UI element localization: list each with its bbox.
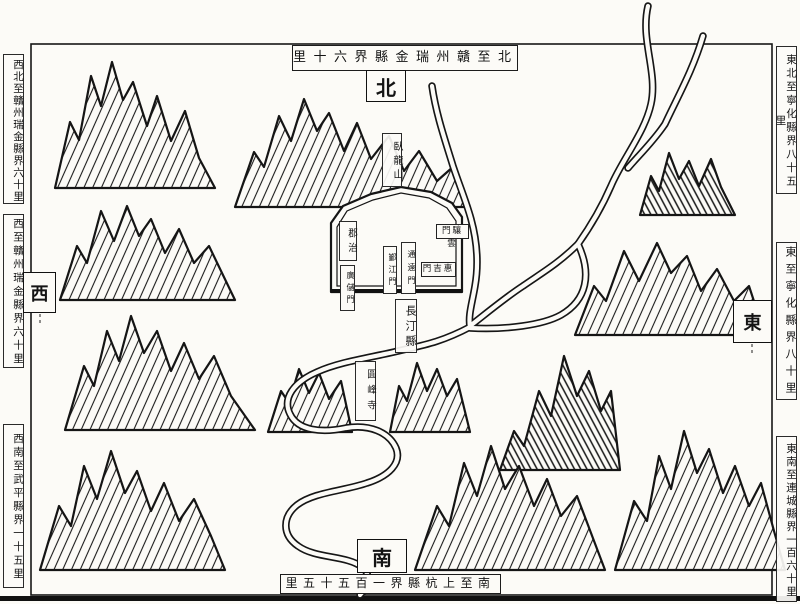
bottom-rule: [0, 596, 800, 601]
compass-south: 南: [357, 539, 407, 573]
label-changting-county: 長汀縣: [395, 299, 417, 353]
mountain-southeast: [615, 431, 785, 570]
compass-west: 西: [23, 272, 56, 313]
label-gate-yunxiang: 門驤雲: [436, 224, 469, 239]
mountain-west-upper: [60, 206, 235, 300]
boundary-note-north: 里十六界縣金瑞州贛至北: [292, 45, 518, 71]
boundary-note-east: 東至寧化縣界八十里: [776, 242, 797, 400]
boundary-note-west: 西至贛州瑞金縣界六十里: [3, 214, 24, 368]
mountain-northeast-crag: [640, 153, 735, 215]
boundary-note-southwest: 西南至武平縣界一十五里: [3, 424, 24, 588]
mountain-west-lower: [65, 316, 255, 430]
compass-north: 北: [366, 70, 406, 102]
label-prefecture-seat: 郡治: [339, 221, 357, 261]
mountain-southwest: [40, 451, 225, 570]
mountain-northwest: [55, 62, 215, 188]
boundary-note-south: 里五十五百一界縣杭上至南: [280, 574, 501, 594]
label-temple: 圓峰寺: [355, 361, 376, 421]
label-gate-huiji: 門吉惠: [421, 262, 456, 277]
mountain-river-right: [390, 363, 470, 432]
mountain-center-crag: [500, 356, 620, 470]
label-gate-guangchu: 廣儲門: [340, 265, 355, 311]
compass-east: 東: [733, 300, 772, 343]
boundary-note-northwest: 西北至贛州瑞金縣界六十里: [3, 54, 24, 204]
label-wolong-mountain: 臥龍山: [382, 133, 402, 187]
label-gate-yinjiang: 鄞江門: [383, 246, 397, 294]
label-gate-tongyuan: 通遠門: [401, 242, 416, 294]
boundary-note-southeast: 東南至連城縣界一百六十里: [776, 436, 797, 602]
woodblock-county-map: 西北至贛州瑞金縣界六十里 西至贛州瑞金縣界六十里 西南至武平縣界一十五里 東北至…: [0, 0, 800, 604]
boundary-note-northeast: 東北至寧化縣界八十五里: [776, 46, 797, 194]
